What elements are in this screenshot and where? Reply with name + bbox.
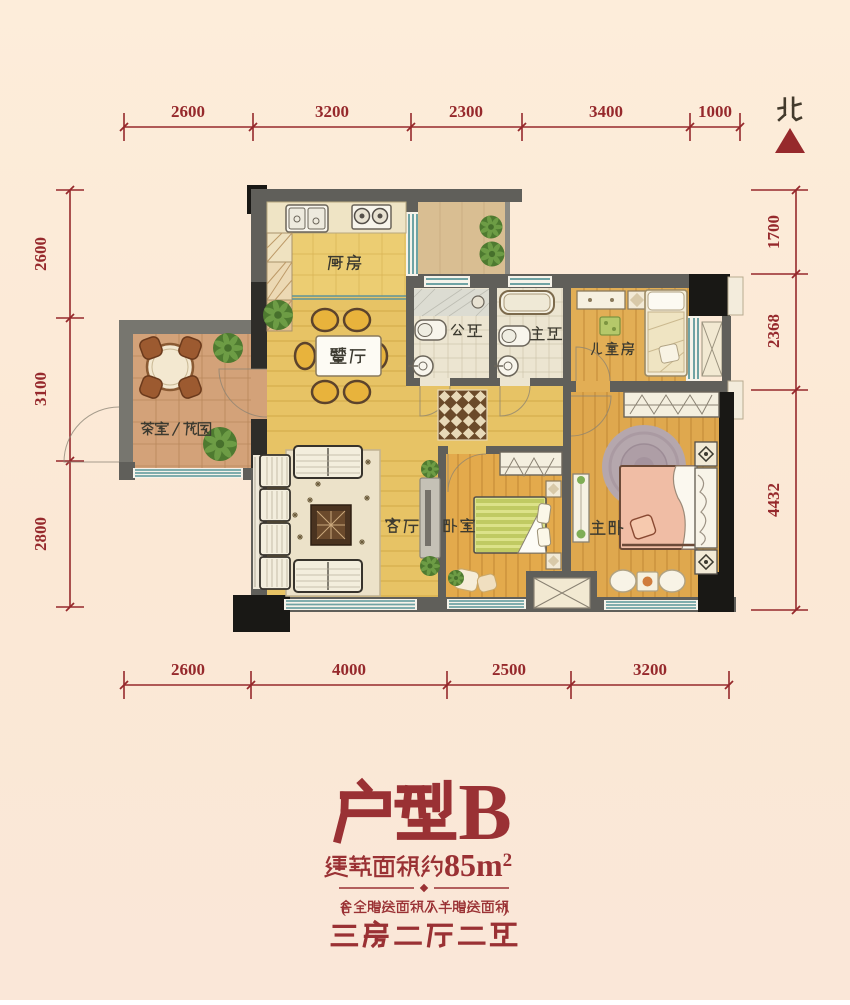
svg-text:2800: 2800 (31, 517, 50, 551)
svg-text:3200: 3200 (633, 660, 667, 679)
svg-text:2600: 2600 (171, 102, 205, 121)
svg-text:85m2: 85m2 (444, 847, 512, 883)
svg-text:2368: 2368 (764, 314, 783, 348)
svg-text:2500: 2500 (492, 660, 526, 679)
svg-text:3200: 3200 (315, 102, 349, 121)
svg-text:3400: 3400 (589, 102, 623, 121)
svg-text:4000: 4000 (332, 660, 366, 679)
svg-text:): ) (503, 901, 508, 917)
svg-text:2300: 2300 (449, 102, 483, 121)
svg-text:1700: 1700 (764, 215, 783, 249)
svg-text:2600: 2600 (31, 237, 50, 271)
svg-text:B: B (458, 769, 511, 857)
svg-text:3100: 3100 (31, 372, 50, 406)
svg-text:2600: 2600 (171, 660, 205, 679)
svg-text:1000: 1000 (698, 102, 732, 121)
svg-text:4432: 4432 (764, 483, 783, 517)
